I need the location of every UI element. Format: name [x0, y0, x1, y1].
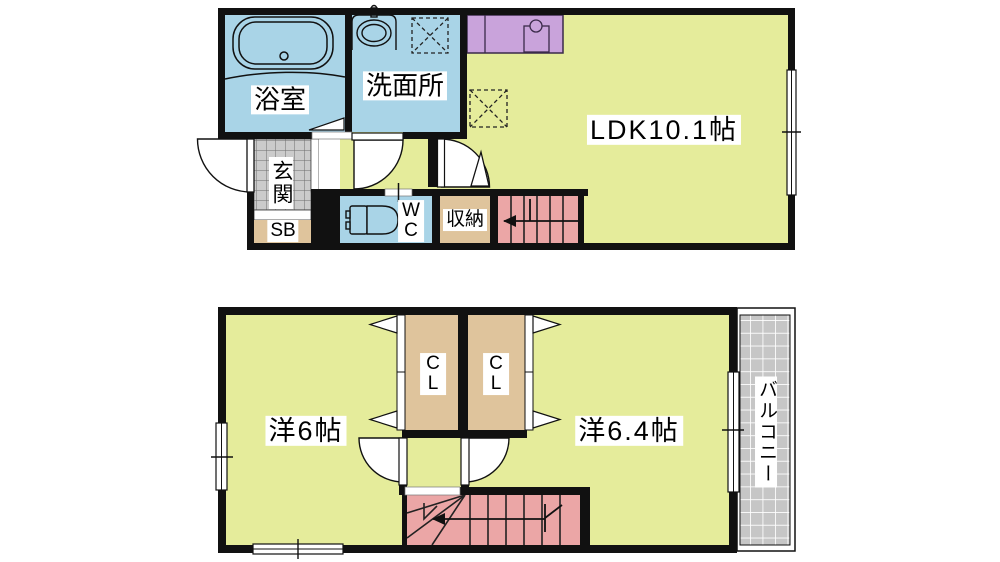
label-room64: 洋6.4帖 [575, 416, 683, 446]
toilet-icon [346, 206, 398, 234]
ldk-door-leaf [438, 139, 445, 187]
kitchen-counter [467, 15, 563, 53]
label-ldk: LDK10.1帖 [587, 115, 741, 145]
label-storage: 収納 [443, 209, 487, 231]
floor-plan: 浴室 洗面所 LDK10.1帖 玄関 SB WC 収納 洋6帖 CL CL 洋6… [0, 0, 1000, 562]
label-closet1: CL [420, 353, 446, 395]
vestibule [319, 139, 340, 189]
floor-plan-drawing [0, 0, 1000, 562]
label-wc: WC [398, 200, 424, 242]
entrance-door [198, 139, 255, 192]
label-balcony: バルコニー [755, 377, 777, 488]
stairs-floor2 [407, 495, 580, 545]
room64-door-leaf [461, 438, 469, 485]
label-entrance: 玄関 [269, 157, 293, 209]
label-washroom: 洗面所 [363, 71, 447, 100]
entrance-step-strip [311, 139, 319, 192]
label-closet2: CL [483, 353, 509, 395]
label-shoebox: SB [267, 220, 298, 242]
washroom-door-leaf [352, 133, 403, 140]
entrance-step [254, 210, 311, 220]
entrance-door-leaf [247, 139, 254, 192]
label-room6: 洋6帖 [265, 416, 346, 446]
stairs-entry [405, 487, 460, 495]
label-bath: 浴室 [251, 85, 309, 114]
room6-door-leaf [399, 438, 407, 485]
